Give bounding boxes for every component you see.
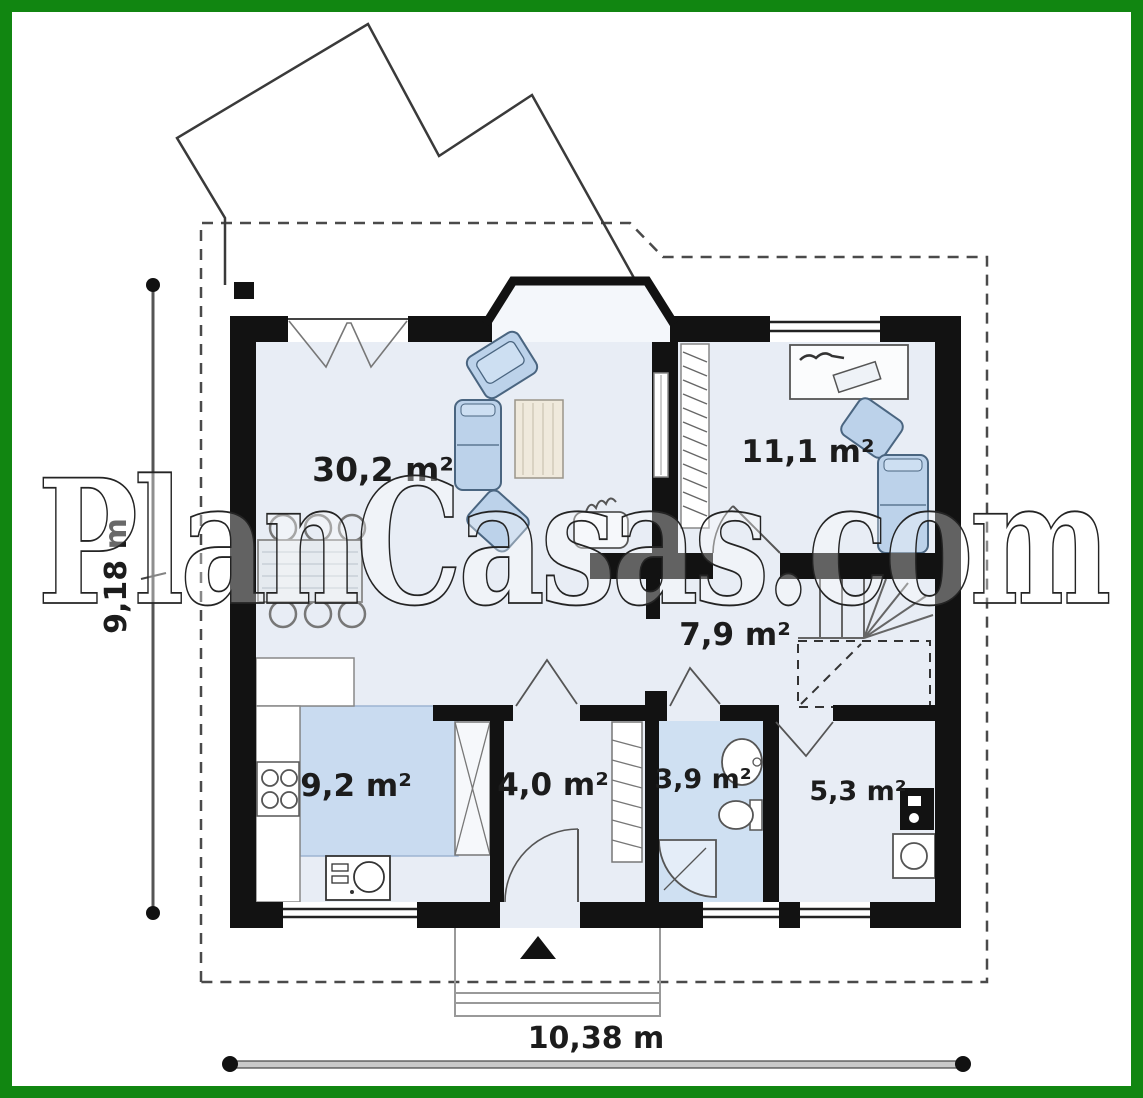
radiator bbox=[612, 722, 642, 862]
bathroom-window bbox=[703, 902, 779, 928]
oven bbox=[326, 856, 390, 900]
dimension-width-label: 10,38 m bbox=[528, 1021, 665, 1056]
chimney bbox=[234, 282, 254, 299]
desk bbox=[790, 345, 908, 399]
bedroom-window bbox=[770, 316, 880, 342]
watermark: PlanCasas.com bbox=[37, 441, 1109, 644]
room-label-bathroom: 3,9 m² bbox=[654, 764, 751, 795]
toilet bbox=[719, 800, 762, 830]
room-label-kitchen: 9,2 m² bbox=[300, 768, 412, 804]
utility-window bbox=[800, 902, 870, 928]
room-label-utility: 5,3 m² bbox=[809, 776, 906, 807]
washing-machine bbox=[893, 834, 935, 878]
closet bbox=[455, 722, 490, 855]
room-label-vestibule: 4,0 m² bbox=[497, 767, 609, 803]
stove bbox=[257, 762, 299, 816]
kitchen-window bbox=[283, 902, 417, 928]
floor-plan-page: 30,2 m² 11,1 m² 7,9 m² 9,2 m² 4,0 m² 3,9… bbox=[0, 0, 1143, 1098]
